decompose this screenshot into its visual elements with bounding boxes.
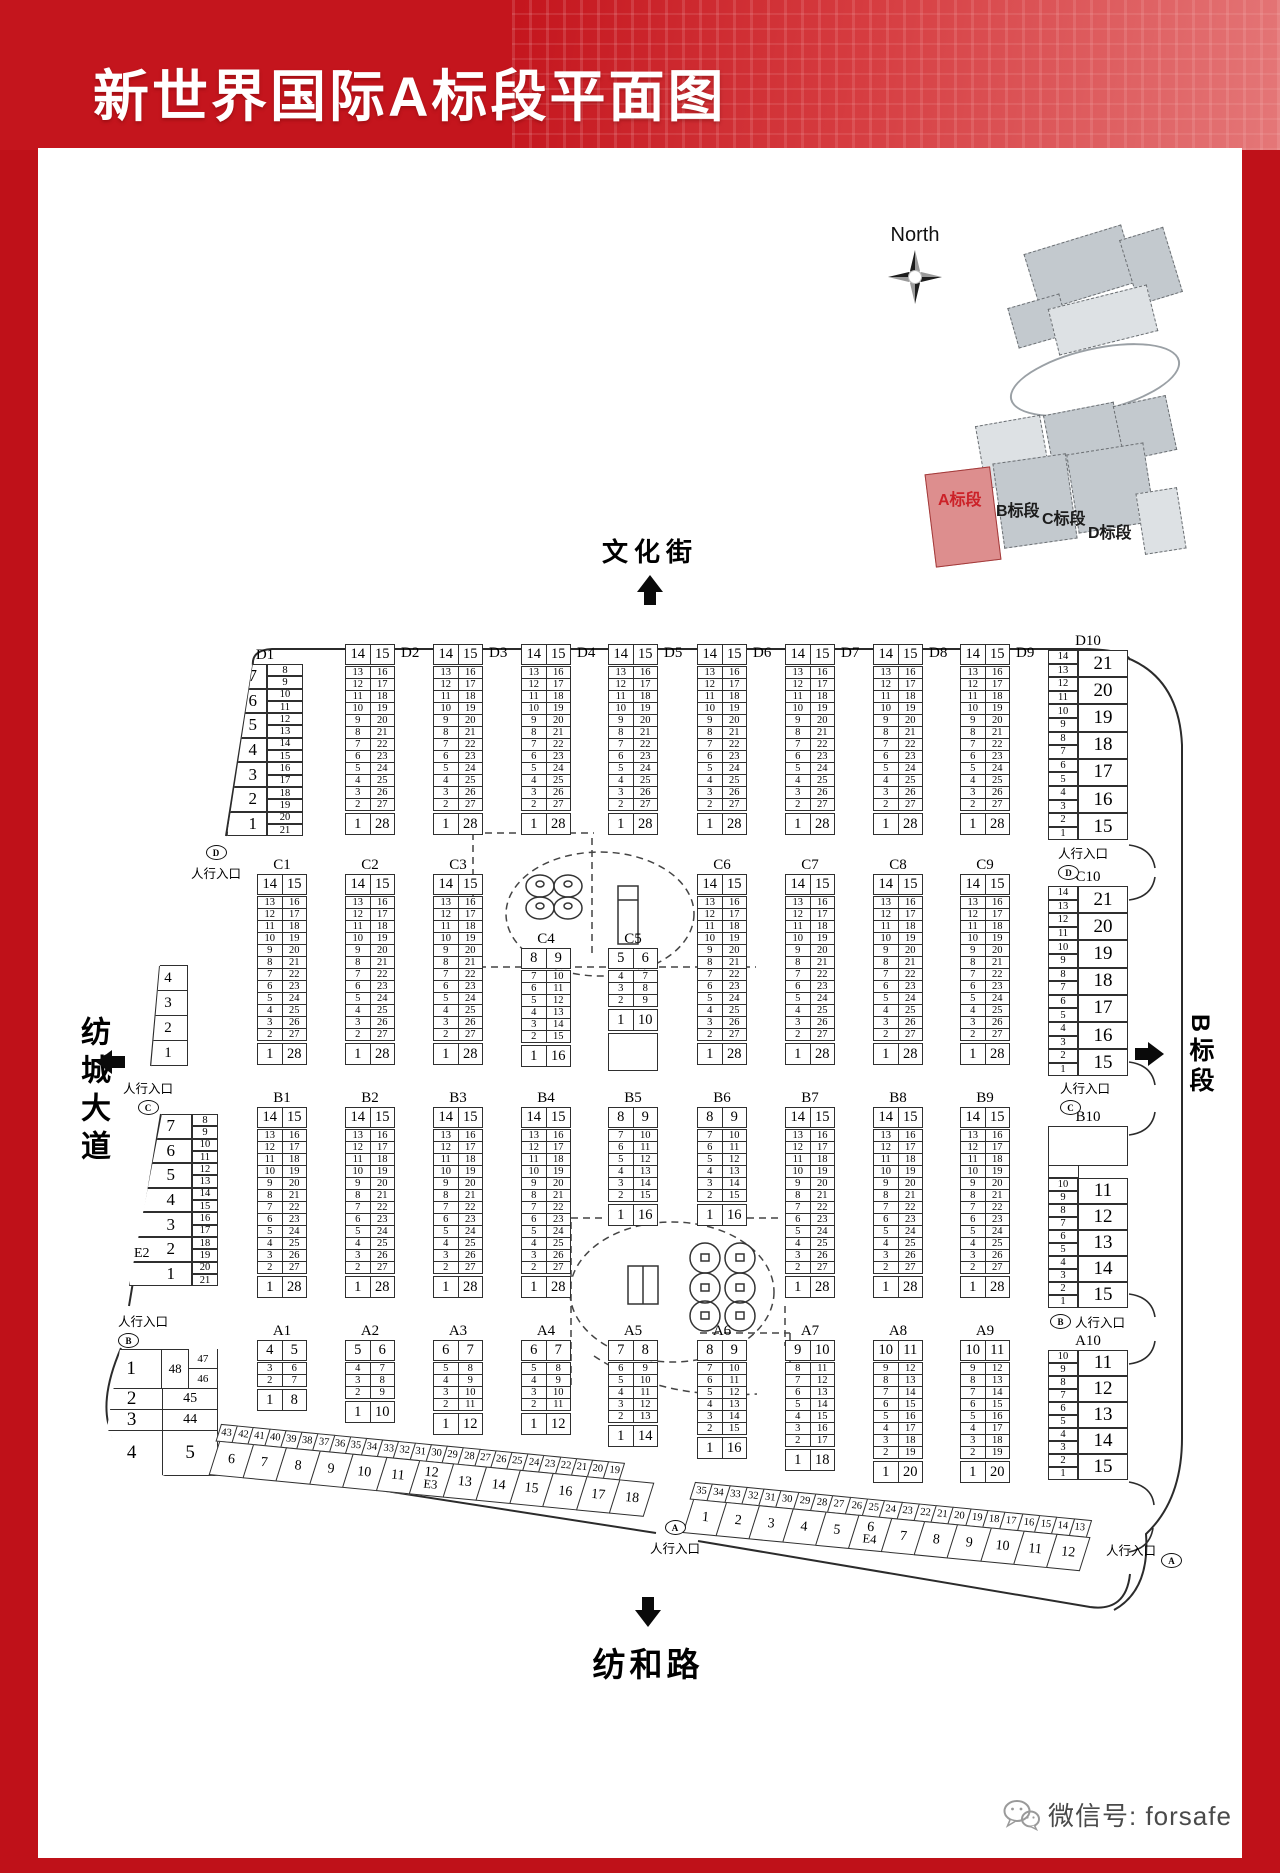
stall-cell: 2 bbox=[257, 1261, 283, 1274]
stall-cell: 2 bbox=[257, 1374, 283, 1387]
stall-row: 18 bbox=[257, 1389, 307, 1411]
minimap-section-d: D标段 bbox=[1088, 519, 1132, 543]
stall-cell: 28 bbox=[722, 1043, 748, 1065]
stall-cell: 1 bbox=[345, 813, 371, 835]
stall-cell: 1 bbox=[1048, 1467, 1078, 1480]
stall-cell: 27 bbox=[370, 1028, 396, 1041]
stall-cell: 27 bbox=[458, 1028, 484, 1041]
stall-row: 1415 bbox=[433, 874, 483, 895]
block-label: D5 bbox=[664, 645, 682, 662]
stall-cell: 9 bbox=[370, 1386, 396, 1399]
stall-row: 112 bbox=[521, 1413, 571, 1435]
stall-row: 67 bbox=[433, 1340, 483, 1361]
stall-row: 227 bbox=[345, 1028, 395, 1041]
block-A4: A4675849310211112 bbox=[521, 1340, 571, 1435]
stall-cell: 27 bbox=[370, 798, 396, 811]
stall-cell: 27 bbox=[458, 798, 484, 811]
stall-cell: 16 bbox=[1078, 1022, 1128, 1049]
stall-cell: 2 bbox=[345, 1386, 371, 1399]
stall-cell: 4 bbox=[1048, 1428, 1078, 1441]
block-label: A5 bbox=[608, 1323, 658, 1340]
stall-row: 128 bbox=[873, 813, 923, 835]
stall-cell: 10 bbox=[633, 1009, 659, 1031]
stall-row: 344 bbox=[100, 1409, 218, 1431]
stall-row: 1484746 bbox=[100, 1349, 218, 1389]
stall-row: 227 bbox=[521, 1261, 571, 1274]
stall-cell: 1 bbox=[608, 813, 634, 835]
stall-row: 1415 bbox=[345, 874, 395, 895]
block-tag: E2 bbox=[134, 1246, 150, 1262]
stall-cell: 1 bbox=[697, 1043, 723, 1065]
block-B3: B314151316121711181019920821722623524425… bbox=[433, 1107, 483, 1298]
stall-cell: 18 bbox=[267, 787, 303, 799]
stall-cell: 8 bbox=[608, 1107, 634, 1128]
block-label: C9 bbox=[960, 857, 1010, 874]
stall-cell: 1 bbox=[257, 1389, 283, 1411]
block-C10: C10141312111098765432121201918171615 bbox=[1048, 886, 1128, 1076]
stall-cell: 13 bbox=[192, 1175, 218, 1187]
stall-cell: 2 bbox=[873, 1028, 899, 1041]
stall-cell: 20 bbox=[1078, 677, 1128, 704]
stall-cell: 2 bbox=[100, 1388, 163, 1410]
stall-cell: 2 bbox=[1048, 813, 1078, 827]
stall-cell: 15 bbox=[370, 874, 396, 895]
stall-cell: 14 bbox=[697, 874, 723, 895]
stall-cell: 10 bbox=[192, 1139, 218, 1151]
stall-cell: 15 bbox=[1078, 1454, 1128, 1480]
stall-cell: 15 bbox=[458, 1107, 484, 1128]
stall-cell: 14 bbox=[433, 644, 459, 665]
stall-cell: 27 bbox=[898, 1028, 924, 1041]
stall-cell: 15 bbox=[1078, 1049, 1128, 1076]
stall-cell: 15 bbox=[282, 874, 308, 895]
stall-cell: 12 bbox=[1048, 913, 1078, 927]
stall-cell: 12 bbox=[192, 1163, 218, 1175]
stall-cell: 14 bbox=[873, 1107, 899, 1128]
strip-label: E4 bbox=[862, 1533, 877, 1546]
stall-cell: 6 bbox=[1048, 759, 1078, 773]
entrance-letter-badge: A bbox=[1161, 1553, 1182, 1568]
stall-cell: 2 bbox=[785, 1261, 811, 1274]
stall-cell: 2 bbox=[960, 1261, 986, 1274]
stall-cell: 2 bbox=[960, 798, 986, 811]
overview-minimap: A标段 B标段 C标段 D标段 bbox=[915, 228, 1185, 578]
minimap-block bbox=[1135, 487, 1186, 555]
stall-cell: 15 bbox=[898, 644, 924, 665]
stall-cell: 14 bbox=[1078, 1428, 1128, 1454]
stall-row: 1415 bbox=[608, 644, 658, 665]
entrance-label: 人行入口 bbox=[123, 1078, 173, 1097]
poster: 新世界国际A标段平面图 North A标段 B标段 C标段 D标段 bbox=[0, 0, 1280, 1873]
stall-row: 120 bbox=[960, 1461, 1010, 1483]
stall-row: 227 bbox=[873, 1028, 923, 1041]
stall-row: 1415 bbox=[873, 1107, 923, 1128]
stall-cell: 44 bbox=[162, 1409, 218, 1431]
stall-cell: 21 bbox=[267, 824, 303, 836]
stall-cell: 2 bbox=[785, 798, 811, 811]
stall-cell: 5 bbox=[1048, 1008, 1078, 1022]
stall-cell: 28 bbox=[458, 1043, 484, 1065]
stall-cell: 1 bbox=[345, 1276, 371, 1298]
stall-cell: 28 bbox=[898, 1043, 924, 1065]
stall-row: 227 bbox=[785, 1028, 835, 1041]
stall-cell: 15 bbox=[722, 874, 748, 895]
block-D3: D314151316121711181019920821722623524425… bbox=[433, 644, 483, 835]
stall-cell: 2 bbox=[608, 1410, 634, 1423]
block-label: D2 bbox=[401, 645, 419, 662]
stall-cell: 3 bbox=[100, 1409, 163, 1431]
stall-cell: 2 bbox=[227, 787, 267, 812]
stall-cell: 9 bbox=[633, 994, 659, 1007]
stall-cell: 1 bbox=[873, 813, 899, 835]
stall-cell: 28 bbox=[282, 1043, 308, 1065]
stall-cell: 27 bbox=[546, 1261, 572, 1274]
stall-cell: 4 bbox=[129, 1188, 192, 1213]
block-A-left: 148474624534445 bbox=[100, 1350, 218, 1476]
stall-row: 128 bbox=[521, 813, 571, 835]
stall-row: 910 bbox=[785, 1340, 835, 1361]
stall-row: 128 bbox=[521, 1276, 571, 1298]
stall-cell: 2 bbox=[785, 1028, 811, 1041]
stall-cell: 2 bbox=[960, 1028, 986, 1041]
stall-cell: 21 bbox=[192, 1274, 218, 1286]
stall-cell: 20 bbox=[267, 812, 303, 824]
stall-row: 217 bbox=[785, 1434, 835, 1447]
stall-row: 219 bbox=[960, 1446, 1010, 1459]
block-label: A8 bbox=[873, 1323, 923, 1340]
stall-cell: 27 bbox=[546, 798, 572, 811]
compass-north-label: North bbox=[880, 224, 950, 247]
stall-row: 128 bbox=[433, 1043, 483, 1065]
stall-row: 245 bbox=[100, 1388, 218, 1410]
stall-cell: 27 bbox=[985, 798, 1011, 811]
stall-cell: 14 bbox=[785, 874, 811, 895]
stall-cell: 15 bbox=[633, 644, 659, 665]
strip-label: E3 bbox=[423, 1479, 438, 1492]
stall-cell: 2 bbox=[697, 1422, 723, 1435]
stall-cell: 2 bbox=[521, 798, 547, 811]
stall-row: 219 bbox=[873, 1446, 923, 1459]
stall-cell: 7 bbox=[129, 1114, 192, 1139]
stall-cell: 11 bbox=[546, 1398, 572, 1411]
stall-cell: 28 bbox=[898, 813, 924, 835]
stall-row: 227 bbox=[433, 798, 483, 811]
stall-cell: 8 bbox=[1048, 1204, 1078, 1217]
stall-row: 227 bbox=[873, 798, 923, 811]
stall-row: 1415 bbox=[697, 644, 747, 665]
block-label: C7 bbox=[785, 857, 835, 874]
street-top-label: 文化街 bbox=[583, 532, 717, 569]
arrow-right-icon bbox=[1148, 1042, 1164, 1066]
block-A5: A57869510411312213114 bbox=[608, 1340, 658, 1447]
stall-cell: 28 bbox=[985, 813, 1011, 835]
stall-cell: 9 bbox=[1048, 1191, 1078, 1204]
stall-cell: 7 bbox=[608, 1340, 634, 1361]
block-label: B9 bbox=[960, 1090, 1010, 1107]
stall-cell: 2 bbox=[873, 1261, 899, 1274]
stall-cell: 28 bbox=[282, 1276, 308, 1298]
block-B1: B114151316121711181019920821722623524425… bbox=[257, 1107, 307, 1298]
stall-cell: 2 bbox=[433, 1261, 459, 1274]
stall-cell: 5 bbox=[608, 948, 634, 969]
stall-row: 89 bbox=[521, 948, 571, 969]
stall-row: 1415 bbox=[785, 644, 835, 665]
stall-cell: 4 bbox=[100, 1430, 163, 1476]
stall-cell: 3 bbox=[227, 762, 267, 787]
stall-cell: 10 bbox=[810, 1340, 836, 1361]
stall-cell: 11 bbox=[458, 1398, 484, 1411]
stall-cell: 3 bbox=[1048, 1269, 1078, 1282]
street-bottom: 纺和路 bbox=[578, 1596, 718, 1686]
stall-cell: 16 bbox=[192, 1212, 218, 1224]
block-label: C8 bbox=[873, 857, 923, 874]
arrow-up-icon bbox=[637, 575, 663, 592]
stall-cell: 15 bbox=[1078, 1282, 1128, 1308]
stall-cell: 10 bbox=[960, 1340, 986, 1361]
stall-cell: 10 bbox=[1048, 704, 1078, 718]
stall-row: 227 bbox=[608, 798, 658, 811]
stall-cell: 11 bbox=[1048, 691, 1078, 705]
minimap-section-b: B标段 bbox=[996, 497, 1040, 521]
stall-row: 27 bbox=[257, 1374, 307, 1387]
stall-cell: 13 bbox=[1078, 1230, 1128, 1256]
stall-cell: 46 bbox=[188, 1368, 218, 1389]
stall-cell: 14 bbox=[873, 874, 899, 895]
stall-cell: 1 bbox=[433, 813, 459, 835]
entrance-label: 人行入口 bbox=[1058, 843, 1108, 862]
stall-cell: 5 bbox=[227, 713, 267, 738]
stall-cell: 2 bbox=[345, 798, 371, 811]
stall-cell: 9 bbox=[267, 676, 303, 688]
stall-cell: 13 bbox=[1078, 1402, 1128, 1428]
stall-row: 227 bbox=[960, 1261, 1010, 1274]
stall-cell: 28 bbox=[458, 1276, 484, 1298]
stall-cell: 1 bbox=[521, 813, 547, 835]
stall-cell: 14 bbox=[433, 874, 459, 895]
block-D6: D614151316121711181019920821722623524425… bbox=[697, 644, 747, 835]
stall-row: 118 bbox=[785, 1449, 835, 1471]
block-label: A3 bbox=[433, 1323, 483, 1340]
stall-cell: 8 bbox=[697, 1340, 723, 1361]
empty-cell bbox=[1048, 1165, 1079, 1178]
stall-cell: 2 bbox=[608, 994, 634, 1007]
block-label: B4 bbox=[521, 1090, 571, 1107]
stall-cell: 28 bbox=[546, 813, 572, 835]
stall-cell: 28 bbox=[810, 1276, 836, 1298]
stall-cell: 2 bbox=[608, 798, 634, 811]
block-label: C4 bbox=[521, 931, 571, 948]
entrance-a-center: A 人行入口 bbox=[644, 1520, 706, 1557]
stall-cell: 16 bbox=[1078, 786, 1128, 813]
stall-cell: 9 bbox=[546, 948, 572, 969]
stall-row: 128 bbox=[873, 1276, 923, 1298]
stall-row: 227 bbox=[257, 1261, 307, 1274]
stall-cell: 14 bbox=[1048, 886, 1078, 900]
block-A1: A145362718 bbox=[257, 1340, 307, 1411]
stall-cell: 2 bbox=[873, 1446, 899, 1459]
block-B8: B814151316121711181019920821722623524425… bbox=[873, 1107, 923, 1298]
stall-cell: 2 bbox=[873, 798, 899, 811]
block-B5: B589710611512413314215116 bbox=[608, 1107, 658, 1226]
stall-row: 128 bbox=[960, 1043, 1010, 1065]
stall-cell: 1 bbox=[873, 1043, 899, 1065]
empty-cell bbox=[608, 1033, 658, 1071]
stall-cell: 27 bbox=[810, 1261, 836, 1274]
block-label: B7 bbox=[785, 1090, 835, 1107]
stall-cell: 15 bbox=[722, 1189, 748, 1202]
street-left: 纺城大道 bbox=[70, 1016, 114, 1168]
stall-row: 1415 bbox=[433, 1107, 483, 1128]
entrance-b-left: 人行入口 B bbox=[118, 1311, 168, 1348]
stall-cell: 28 bbox=[898, 1276, 924, 1298]
stall-cell: 2 bbox=[697, 798, 723, 811]
block-B6: B689710611512413314215116 bbox=[697, 1107, 747, 1226]
stall-cell: 27 bbox=[985, 1028, 1011, 1041]
block-A9: A91011912813714615516417318219120 bbox=[960, 1340, 1010, 1483]
entrance-letter-badge: D bbox=[1058, 865, 1079, 880]
entrance-b-right: B 人行入口 bbox=[1050, 1312, 1125, 1331]
stall-row: 29 bbox=[608, 994, 658, 1007]
stall-row: 128 bbox=[960, 1276, 1010, 1298]
stall-cell: 14 bbox=[521, 644, 547, 665]
stall-cell: 17 bbox=[1078, 759, 1128, 786]
stall-cell: 7 bbox=[1048, 1389, 1078, 1402]
stall-cell: 7 bbox=[1048, 1217, 1078, 1230]
stall-row: 227 bbox=[960, 1028, 1010, 1041]
block-A2: A256473829110 bbox=[345, 1340, 395, 1423]
street-right-label: B标段 bbox=[1182, 1014, 1218, 1097]
stall-cell: 5 bbox=[1048, 772, 1078, 786]
block-D5: D514151316121711181019920821722623524425… bbox=[608, 644, 658, 835]
stall-cell: 4 bbox=[1048, 786, 1078, 800]
stall-cell: 12 bbox=[1078, 1376, 1128, 1402]
stall-cell: 20 bbox=[192, 1262, 218, 1274]
stall-cell: 5 bbox=[1048, 1415, 1078, 1428]
stall-cell: 16 bbox=[633, 1204, 659, 1226]
stall-row: 215 bbox=[608, 1189, 658, 1202]
stall-cell: 9 bbox=[192, 1126, 218, 1138]
block-label: A2 bbox=[345, 1323, 395, 1340]
stall-row: 1415 bbox=[521, 1107, 571, 1128]
stall-row: 128 bbox=[257, 1276, 307, 1298]
stall-cell: 1 bbox=[608, 1204, 634, 1226]
stall-cell: 7 bbox=[1048, 981, 1078, 995]
stall-cell: 1 bbox=[1048, 1295, 1078, 1308]
stall-cell: 15 bbox=[546, 1107, 572, 1128]
stall-cell: 48 bbox=[161, 1349, 189, 1389]
entrance-letter-badge: D bbox=[206, 845, 227, 860]
stall-row: 215 bbox=[521, 1030, 571, 1043]
wechat-id-text: 微信号: forsafe bbox=[1048, 1796, 1232, 1833]
stall-row: 1011 bbox=[960, 1340, 1010, 1361]
stall-cell: 15 bbox=[267, 750, 303, 762]
stall-cell: 8 bbox=[1048, 732, 1078, 746]
block-label: B2 bbox=[345, 1090, 395, 1107]
stall-cell: 20 bbox=[898, 1461, 924, 1483]
stall-cell: 15 bbox=[192, 1200, 218, 1212]
stall-row: 1415 bbox=[257, 1107, 307, 1128]
stall-cell: 28 bbox=[985, 1043, 1011, 1065]
stall-row: 128 bbox=[785, 813, 835, 835]
block-label: D10 bbox=[1048, 633, 1128, 650]
stall-cell: 11 bbox=[985, 1340, 1011, 1361]
stall-cell: 2 bbox=[785, 1434, 811, 1447]
stall-cell: 10 bbox=[267, 689, 303, 701]
stall-cell: 3 bbox=[129, 1212, 192, 1237]
block-C8: C814151316121711181019920821722623524425… bbox=[873, 874, 923, 1065]
stall-cell: 15 bbox=[633, 1189, 659, 1202]
banner: 新世界国际A标段平面图 bbox=[0, 0, 1280, 150]
compass-star-icon bbox=[887, 249, 943, 305]
stall-cell: 7 bbox=[282, 1374, 308, 1387]
block-label: D6 bbox=[753, 645, 771, 662]
block-C9: C914151316121711181019920821722623524425… bbox=[960, 874, 1010, 1065]
stall-cell: 9 bbox=[785, 1340, 811, 1361]
empty-cell bbox=[1048, 1126, 1128, 1166]
stall-cell: 15 bbox=[985, 874, 1011, 895]
stall-row: 211 bbox=[433, 1398, 483, 1411]
stall-cell: 19 bbox=[267, 799, 303, 811]
stall-cell: 28 bbox=[722, 813, 748, 835]
entrance-letter-badge: B bbox=[118, 1333, 139, 1348]
stall-cell: 1 bbox=[521, 1276, 547, 1298]
stall-cell: 28 bbox=[810, 813, 836, 835]
stall-cell: 10 bbox=[1048, 1178, 1078, 1191]
stall-cell: 12 bbox=[1048, 677, 1078, 691]
block-label: C2 bbox=[345, 857, 395, 874]
block-label: D4 bbox=[577, 645, 595, 662]
block-D9: D914151316121711181019920821722623524425… bbox=[960, 644, 1010, 835]
stall-row: 45 bbox=[257, 1340, 307, 1361]
block-label: A6 bbox=[697, 1323, 747, 1340]
stall-cell: 2 bbox=[345, 1028, 371, 1041]
block-B2: B214151316121711181019920821722623524425… bbox=[345, 1107, 395, 1298]
block-label: A1 bbox=[257, 1323, 307, 1340]
stall-cell: 3 bbox=[1048, 1441, 1078, 1454]
stall-row: 116 bbox=[697, 1204, 747, 1226]
stall-row: 1415 bbox=[785, 1107, 835, 1128]
stall-cell: 6 bbox=[633, 948, 659, 969]
stall-cell: 11 bbox=[267, 701, 303, 713]
block-A7: A7910811712613514415316217118 bbox=[785, 1340, 835, 1471]
stall-cell: 1 bbox=[227, 812, 267, 837]
stall-cell: 1 bbox=[785, 1449, 811, 1471]
block-label: D1 bbox=[227, 647, 303, 664]
stall-cell: 11 bbox=[192, 1151, 218, 1163]
stall-cell: 10 bbox=[873, 1340, 899, 1361]
stall-cell: 14 bbox=[192, 1188, 218, 1200]
stall-row: 1415 bbox=[697, 874, 747, 895]
stall-cell: 7 bbox=[546, 1340, 572, 1361]
stall-row: 227 bbox=[960, 798, 1010, 811]
stall-cell: 19 bbox=[985, 1446, 1011, 1459]
stall-row: 227 bbox=[697, 798, 747, 811]
stall-row: 112 bbox=[433, 1413, 483, 1435]
wechat-footer: 微信号: forsafe bbox=[1002, 1796, 1232, 1833]
stall-cell: 1 bbox=[608, 1009, 634, 1031]
stall-cell: 6 bbox=[1048, 1230, 1078, 1243]
stall-cell: 15 bbox=[722, 644, 748, 665]
stall-row: 128 bbox=[433, 1276, 483, 1298]
stall-cell: 1 bbox=[960, 1276, 986, 1298]
stall-cell: 9 bbox=[1048, 718, 1078, 732]
stall-cell: 15 bbox=[810, 1107, 836, 1128]
stall-row: 211 bbox=[521, 1398, 571, 1411]
stall-row: 110 bbox=[345, 1401, 395, 1423]
entrance-label: 人行入口 bbox=[118, 1311, 168, 1330]
stall-row: 120 bbox=[873, 1461, 923, 1483]
stall-row: 116 bbox=[608, 1204, 658, 1226]
